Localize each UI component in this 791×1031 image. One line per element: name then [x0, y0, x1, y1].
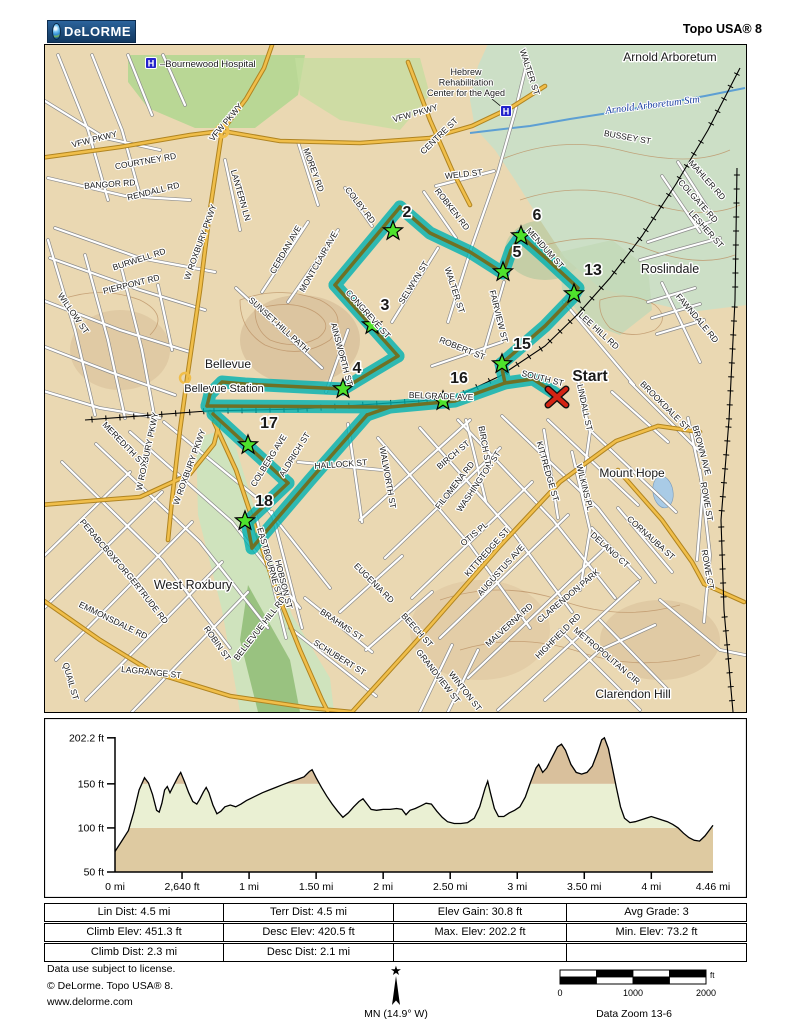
magnetic-north-label: MN (14.9° W)	[326, 1008, 466, 1020]
topo-map[interactable]: VFW PKWYVFW PKWYVFW PKWYCOURTNEY RDBANGO…	[44, 44, 747, 713]
railroad-tick	[727, 672, 733, 673]
waypoint-label: 16	[450, 370, 468, 387]
x-tick-label: 2 mi	[373, 881, 393, 893]
x-tick-label: 4 mi	[641, 881, 661, 893]
stat-climb-elev: Climb Elev: 451.3 ft	[44, 923, 224, 942]
stats-row: Lin Dist: 4.5 mi Terr Dist: 4.5 mi Elev …	[44, 903, 747, 922]
railroad-tick	[729, 700, 735, 701]
scale-segment	[560, 970, 597, 977]
x-tick-label: 2,640 ft	[165, 881, 200, 893]
x-tick-label: 3 mi	[507, 881, 527, 893]
scale-segment	[597, 977, 634, 984]
scale-segment	[560, 977, 597, 984]
map-scale-bar: 010002000ft	[552, 966, 722, 1000]
delorme-logo: DeLORME	[47, 20, 136, 43]
poi-label: Rehabilitation	[439, 78, 494, 88]
poi-label: –Bournewood Hospital	[160, 59, 256, 70]
stats-row: Climb Dist: 2.3 mi Desc Dist: 2.1 mi	[44, 943, 747, 962]
scale-label: 2000	[696, 988, 716, 998]
license-line: Data use subject to license.	[47, 961, 175, 978]
hospital-icon-letter: H	[503, 107, 510, 117]
railroad-tick	[728, 686, 734, 687]
scale-segment	[670, 977, 707, 984]
railroad-tick	[722, 617, 728, 618]
scale-label: 1000	[623, 988, 643, 998]
x-tick-label: 4.46 mi	[696, 881, 730, 893]
license-line: © DeLorme. Topo USA® 8.	[47, 978, 175, 995]
place-label: Roslindale	[641, 262, 699, 276]
poi-label: Center for the Aged	[427, 88, 505, 98]
waypoint-label: 17	[260, 415, 278, 432]
place-label: Bellevue Station	[184, 383, 264, 395]
scale-segment	[633, 970, 670, 977]
waypoint-label: 5	[513, 244, 522, 261]
app-title: Topo USA® 8	[683, 22, 762, 36]
y-tick-label: 50 ft	[84, 867, 105, 879]
place-label: Mount Hope	[599, 466, 665, 480]
y-tick-label: 150 ft	[78, 778, 104, 790]
hospital-icon-letter: H	[148, 59, 155, 69]
stat-terr-dist: Terr Dist: 4.5 mi	[223, 903, 394, 922]
stat-avg-grade: Avg Grade: 3	[566, 903, 747, 922]
stat-empty	[566, 943, 747, 962]
scale-segment	[670, 970, 707, 977]
stat-elev-gain: Elev Gain: 30.8 ft	[393, 903, 567, 922]
waypoint-label: 2	[403, 204, 412, 221]
x-tick-label: 0 mi	[105, 881, 125, 893]
y-tick-label: 202.2 ft	[69, 732, 104, 744]
place-label: Arnold Arboretum	[623, 50, 716, 64]
elevation-band	[115, 828, 713, 872]
logo-text: DeLORME	[64, 24, 131, 39]
page: DeLORME Topo USA® 8 VFW PKWYVFW PKWYVFW …	[0, 0, 791, 1031]
scale-segment	[597, 970, 634, 977]
start-label: Start	[572, 368, 607, 385]
x-tick-label: 3.50 mi	[567, 881, 601, 893]
svg-text:★: ★	[390, 963, 402, 978]
waypoint-label: 18	[255, 493, 273, 510]
waypoint-label: 4	[353, 360, 362, 377]
waypoint-label: 15	[513, 336, 531, 353]
scale-segment	[633, 977, 670, 984]
x-tick-label: 2.50 mi	[433, 881, 467, 893]
stat-desc-dist: Desc Dist: 2.1 mi	[223, 943, 394, 962]
y-tick-label: 100 ft	[78, 822, 104, 834]
waypoint-label: 3	[381, 297, 390, 314]
elevation-profile-chart: 202.2 ft150 ft100 ft50 ft0 mi2,640 ft1 m…	[44, 718, 747, 898]
place-label: West Roxbury	[154, 578, 233, 592]
stat-max-elev: Max. Elev: 202.2 ft	[393, 923, 567, 942]
railroad-tick	[723, 631, 729, 632]
stat-desc-elev: Desc Elev: 420.5 ft	[223, 923, 394, 942]
place-label: Bellevue	[205, 357, 251, 371]
scale-unit-label: ft	[710, 971, 715, 980]
x-tick-label: 1.50 mi	[299, 881, 333, 893]
stats-row: Climb Elev: 451.3 ft Desc Elev: 420.5 ft…	[44, 923, 747, 942]
waypoint-label: 6	[533, 207, 542, 224]
x-tick-label: 1 mi	[239, 881, 259, 893]
scale-label: 0	[557, 988, 562, 998]
stat-empty	[393, 943, 567, 962]
globe-icon	[52, 23, 61, 40]
stat-climb-dist: Climb Dist: 2.3 mi	[44, 943, 224, 962]
railroad-tick	[725, 659, 731, 660]
license-text: Data use subject to license. © DeLorme. …	[47, 961, 175, 1011]
poi-label: Hebrew	[450, 67, 482, 77]
place-label: Clarendon Hill	[595, 687, 670, 701]
stat-min-elev: Min. Elev: 73.2 ft	[566, 923, 747, 942]
route-stats-table: Lin Dist: 4.5 mi Terr Dist: 4.5 mi Elev …	[44, 903, 747, 963]
data-zoom-label: Data Zoom 13-6	[564, 1008, 704, 1020]
license-line: www.delorme.com	[47, 994, 175, 1011]
waypoint-label: 13	[584, 262, 602, 279]
railroad-tick	[724, 645, 730, 646]
stat-lin-dist: Lin Dist: 4.5 mi	[44, 903, 224, 922]
north-arrow-icon: ★	[376, 962, 416, 1008]
